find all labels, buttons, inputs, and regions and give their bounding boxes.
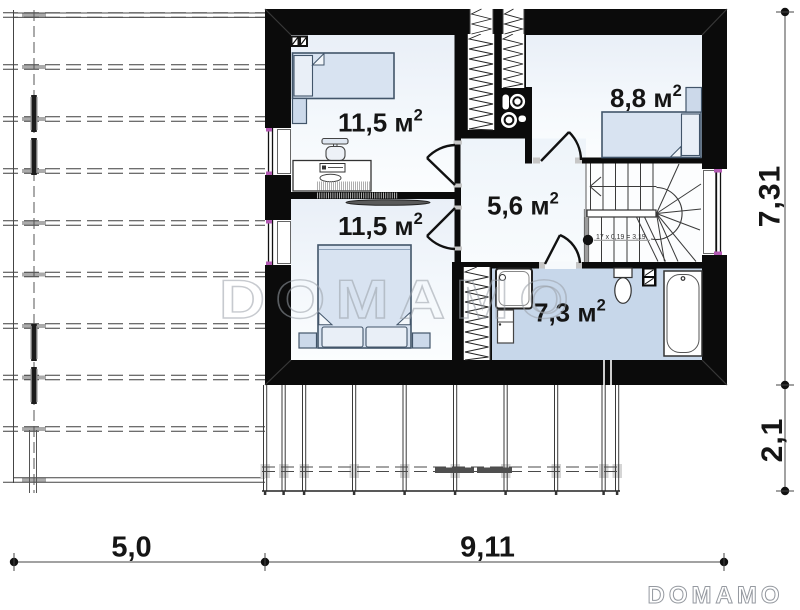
svg-text:2,1: 2,1: [756, 418, 789, 463]
svg-text:5,0: 5,0: [111, 532, 151, 564]
svg-text:5,6 м2: 5,6 м2: [487, 190, 559, 221]
svg-text:9,11: 9,11: [460, 532, 515, 564]
svg-text:11,5 м2: 11,5 м2: [338, 107, 423, 138]
svg-text:7,31: 7,31: [754, 165, 787, 227]
svg-text:11,5 м2: 11,5 м2: [338, 210, 423, 241]
svg-text:8,8 м2: 8,8 м2: [610, 82, 682, 113]
svg-text:DOMAMO: DOMAMO: [219, 268, 579, 330]
svg-text:17 x 0,19 = 3,19: 17 x 0,19 = 3,19: [596, 234, 646, 241]
svg-text:DOMAMO: DOMAMO: [648, 582, 784, 609]
